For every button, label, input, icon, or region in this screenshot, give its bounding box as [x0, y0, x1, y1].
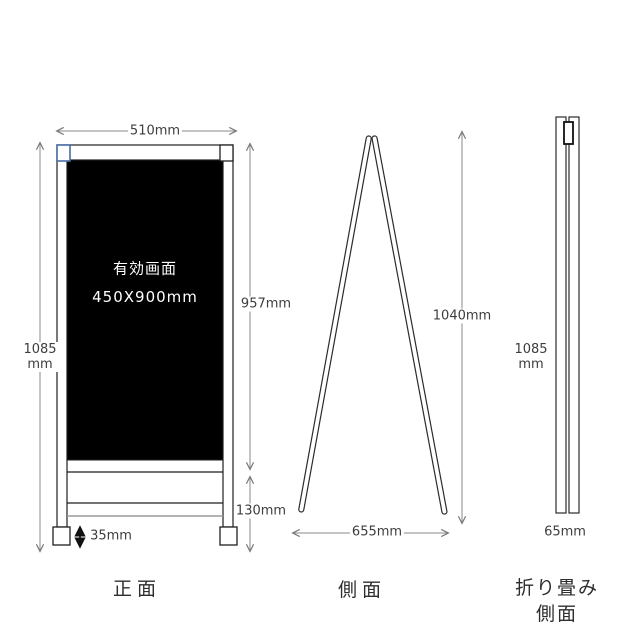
- dim-folded-thickness-label: 65mm: [542, 525, 588, 540]
- side-view: [298, 136, 447, 515]
- folded-view: [556, 117, 579, 513]
- dimension-drawing-page: 510mm 1085 mm 有効画面 450X900mm 957mm 130mm…: [0, 0, 640, 640]
- front-top-left-corner-cap: [57, 145, 70, 161]
- folded-right-panel: [569, 117, 579, 513]
- board-effective-area-label: 有効画面: [113, 258, 177, 279]
- dim-side-depth-label: 655mm: [350, 525, 404, 540]
- side-front-leg: [298, 136, 371, 513]
- folded-view-title: 折り畳み 側面: [515, 575, 599, 627]
- front-right-foot: [220, 527, 237, 545]
- dim-folded-height-unit: mm: [514, 357, 547, 372]
- folded-hinge-detail: [564, 122, 573, 144]
- side-view-title: 側面: [338, 577, 386, 603]
- dim-base-height-label: 130mm: [234, 504, 288, 519]
- dim-folded-height-label: 1085 mm: [512, 342, 549, 372]
- front-top-right-corner-cap: [220, 145, 233, 161]
- side-rear-leg: [372, 136, 448, 515]
- dim-height-front-value: 1085: [23, 342, 56, 357]
- dim-height-front-unit: mm: [23, 357, 56, 372]
- front-view: [53, 145, 237, 545]
- folded-view-title-line1: 折り畳み: [515, 575, 599, 601]
- dim-board-height-label: 957mm: [239, 297, 293, 312]
- front-right-post: [223, 160, 233, 527]
- dim-foot-height-label: 35mm: [88, 529, 134, 544]
- dim-side-height-label: 1040mm: [431, 309, 493, 324]
- front-left-foot: [53, 527, 70, 545]
- board-effective-size-label: 450X900mm: [92, 288, 198, 306]
- dim-height-front-label: 1085 mm: [21, 342, 58, 372]
- folded-view-title-line2: 側面: [515, 601, 599, 627]
- front-view-title: 正面: [113, 576, 161, 602]
- folded-left-panel: [556, 117, 566, 513]
- dim-width-label: 510mm: [128, 124, 182, 139]
- technical-drawing: [0, 0, 640, 640]
- front-blackboard-panel: [67, 160, 223, 460]
- dim-folded-height-value: 1085: [514, 342, 547, 357]
- front-top-bar: [57, 145, 233, 160]
